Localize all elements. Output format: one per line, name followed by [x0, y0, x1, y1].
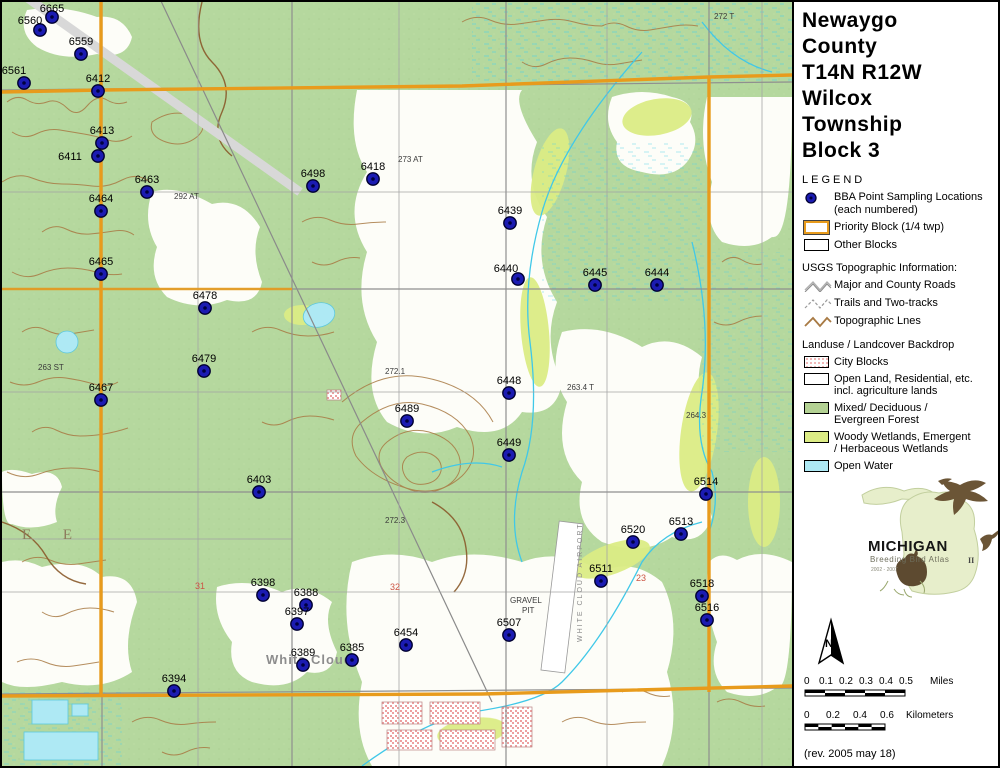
map-annotation: 272.3 — [385, 516, 406, 525]
north-label: N — [825, 638, 833, 650]
legend-item-open-water: Open Water — [802, 460, 992, 472]
map-annotation: 31 — [195, 581, 205, 591]
legend-item-bba-points: BBA Point Sampling Locations — [802, 191, 992, 204]
scale-tick: 0 — [804, 676, 810, 687]
scalebar-kilometers: 0 0.2 0.4 0.6 Kilometers — [802, 710, 992, 740]
svg-text:6385: 6385 — [340, 642, 364, 654]
svg-text:6449: 6449 — [497, 437, 521, 449]
open-land-swatch-icon — [802, 373, 834, 385]
svg-text:6394: 6394 — [162, 673, 186, 685]
svg-text:6412: 6412 — [86, 73, 110, 85]
revision-note: (rev. 2005 may 18) — [804, 748, 992, 760]
title-line: Wilcox — [802, 86, 992, 112]
scale-tick: 0.2 — [826, 710, 840, 721]
logo-subtitle: Breeding Bird Atlas — [870, 555, 949, 564]
map-annotation: GRAVEL — [510, 596, 542, 605]
map-annotation: 264.3 — [686, 411, 707, 420]
title-line: County — [802, 34, 992, 60]
svg-text:6448: 6448 — [497, 375, 521, 387]
svg-text:6507: 6507 — [497, 617, 521, 629]
legend-label: Topographic Lnes — [834, 315, 921, 327]
water-swatch-icon — [802, 460, 834, 472]
svg-text:6463: 6463 — [135, 174, 159, 186]
scale-unit: Miles — [930, 676, 953, 687]
svg-text:6478: 6478 — [193, 290, 217, 302]
svg-text:6516: 6516 — [695, 602, 719, 614]
scale-tick: 0.6 — [880, 710, 894, 721]
svg-text:6479: 6479 — [192, 353, 216, 365]
title-line: Block 3 — [802, 138, 992, 164]
map-annotation: 263 ST — [38, 363, 64, 372]
kilometers-bar — [804, 723, 886, 731]
legend-item-forest: Mixed/ Deciduous / — [802, 402, 992, 414]
svg-text:6388: 6388 — [294, 587, 318, 599]
legend-heading: LEGEND — [802, 174, 992, 186]
scale-tick: 0.3 — [859, 676, 873, 687]
wetland-swatch-icon — [802, 431, 834, 443]
svg-text:6559: 6559 — [69, 36, 93, 48]
city-blocks-swatch-icon — [802, 356, 834, 368]
scalebar-miles: 0 0.1 0.2 0.3 0.4 0.5 Miles — [802, 676, 992, 706]
svg-text:6440: 6440 — [494, 263, 518, 275]
svg-text:6467: 6467 — [89, 382, 113, 394]
legend-label: Open Land, Residential, etc. — [834, 373, 973, 385]
svg-text:6411: 6411 — [58, 151, 82, 163]
legend-label: Major and County Roads — [834, 279, 956, 291]
svg-text:6561: 6561 — [2, 65, 26, 77]
legend-label: Mixed/ Deciduous / — [834, 402, 928, 414]
map-annotation: 273 AT — [398, 155, 423, 164]
legend-item-priority-block: Priority Block (1/4 twp) — [802, 221, 992, 234]
legend-item-open-land: Open Land, Residential, etc. — [802, 373, 992, 385]
svg-text:6454: 6454 — [394, 627, 418, 639]
map-annotation: E E — [22, 527, 86, 543]
legend-label: Evergreen Forest — [834, 414, 992, 426]
svg-text:6439: 6439 — [498, 205, 522, 217]
map-annotation: PIT — [522, 606, 535, 615]
scale-tick: 0.5 — [899, 676, 913, 687]
legend-item-topo-lines: Topographic Lnes — [802, 315, 992, 328]
legend-item-trails: Trails and Two-tracks — [802, 297, 992, 310]
map-annotation: 292 AT — [174, 192, 199, 201]
small-bird-icon — [980, 529, 998, 551]
svg-text:6397: 6397 — [285, 606, 309, 618]
other-blocks-icon — [802, 239, 834, 251]
map-annotation: 32 — [390, 582, 400, 592]
map-annotation: 272 T — [714, 12, 734, 21]
road-line-icon — [802, 279, 834, 292]
legend-label: / Herbaceous Wetlands — [834, 443, 992, 455]
usgs-heading: USGS Topographic Information: — [802, 262, 992, 274]
trail-line-icon — [802, 297, 834, 310]
legend-label: Woody Wetlands, Emergent — [834, 431, 971, 443]
title-line: Township — [802, 112, 992, 138]
mbba-logo: MICHIGAN Breeding Bird Atlas 2002 - 2007… — [842, 477, 992, 615]
svg-text:6518: 6518 — [690, 578, 714, 590]
legend-label: Trails and Two-tracks — [834, 297, 938, 309]
priority-block-icon — [802, 221, 834, 234]
svg-text:6464: 6464 — [89, 193, 113, 205]
scale-tick: 0 — [804, 710, 810, 721]
map-sheet: White CloudE EGRAVELPITWHITE CLOUD AIRPO… — [0, 0, 1000, 768]
svg-text:6398: 6398 — [251, 577, 275, 589]
title-line: Newaygo — [802, 8, 992, 34]
map-annotation: WHITE CLOUD AIRPORT — [577, 522, 584, 642]
legend-item-city-blocks: City Blocks — [802, 356, 992, 368]
landuse-heading: Landuse / Landcover Backdrop — [802, 339, 992, 351]
legend-label: (each numbered) — [834, 204, 992, 216]
svg-text:6413: 6413 — [90, 125, 114, 137]
svg-text:6403: 6403 — [247, 474, 271, 486]
map-sidebar: Newaygo County T14N R12W Wilcox Township… — [792, 2, 998, 766]
topo-line-icon — [802, 315, 834, 328]
scale-unit: Kilometers — [906, 710, 953, 721]
map-area: White CloudE EGRAVELPITWHITE CLOUD AIRPO… — [2, 2, 792, 766]
legend-item-other-blocks: Other Blocks — [802, 239, 992, 251]
svg-text:6465: 6465 — [89, 256, 113, 268]
svg-text:6511: 6511 — [589, 563, 613, 575]
legend-label: incl. agriculture lands — [834, 385, 992, 397]
svg-text:6445: 6445 — [583, 267, 607, 279]
legend-item-roads: Major and County Roads — [802, 279, 992, 292]
page-title: Newaygo County T14N R12W Wilcox Township… — [802, 8, 992, 164]
bba-point-icon — [802, 191, 834, 204]
svg-text:6498: 6498 — [301, 168, 325, 180]
scale-tick: 0.2 — [839, 676, 853, 687]
miles-bar — [804, 689, 906, 697]
svg-text:6560: 6560 — [18, 15, 42, 27]
legend-label: BBA Point Sampling Locations — [834, 191, 983, 203]
legend-label: City Blocks — [834, 356, 888, 368]
svg-text:6513: 6513 — [669, 516, 693, 528]
svg-text:6389: 6389 — [291, 647, 315, 659]
legend-label: Priority Block (1/4 twp) — [834, 221, 944, 233]
logo-title: MICHIGAN — [868, 538, 948, 555]
scale-tick: 0.4 — [879, 676, 893, 687]
scale-tick: 0.4 — [853, 710, 867, 721]
north-arrow: N — [816, 617, 992, 672]
topographic-map: White CloudE EGRAVELPITWHITE CLOUD AIRPO… — [2, 2, 792, 766]
svg-text:6489: 6489 — [395, 403, 419, 415]
svg-text:6665: 6665 — [40, 3, 64, 15]
bba-point-6411: 6411 — [58, 150, 104, 163]
forest-swatch-icon — [802, 402, 834, 414]
map-annotation: 272.1 — [385, 367, 406, 376]
map-annotation: 263.4 T — [567, 383, 594, 392]
svg-text:6444: 6444 — [645, 267, 669, 279]
logo-numeral: II — [968, 556, 974, 565]
svg-text:6514: 6514 — [694, 476, 718, 488]
title-line: T14N R12W — [802, 60, 992, 86]
map-annotation: 23 — [636, 573, 646, 583]
legend-item-wetlands: Woody Wetlands, Emergent — [802, 431, 992, 443]
svg-text:6520: 6520 — [621, 524, 645, 536]
legend-label: Other Blocks — [834, 239, 897, 251]
svg-text:6418: 6418 — [361, 161, 385, 173]
legend-label: Open Water — [834, 460, 893, 472]
logo-years: 2002 - 2007 — [871, 567, 898, 573]
scale-tick: 0.1 — [819, 676, 833, 687]
